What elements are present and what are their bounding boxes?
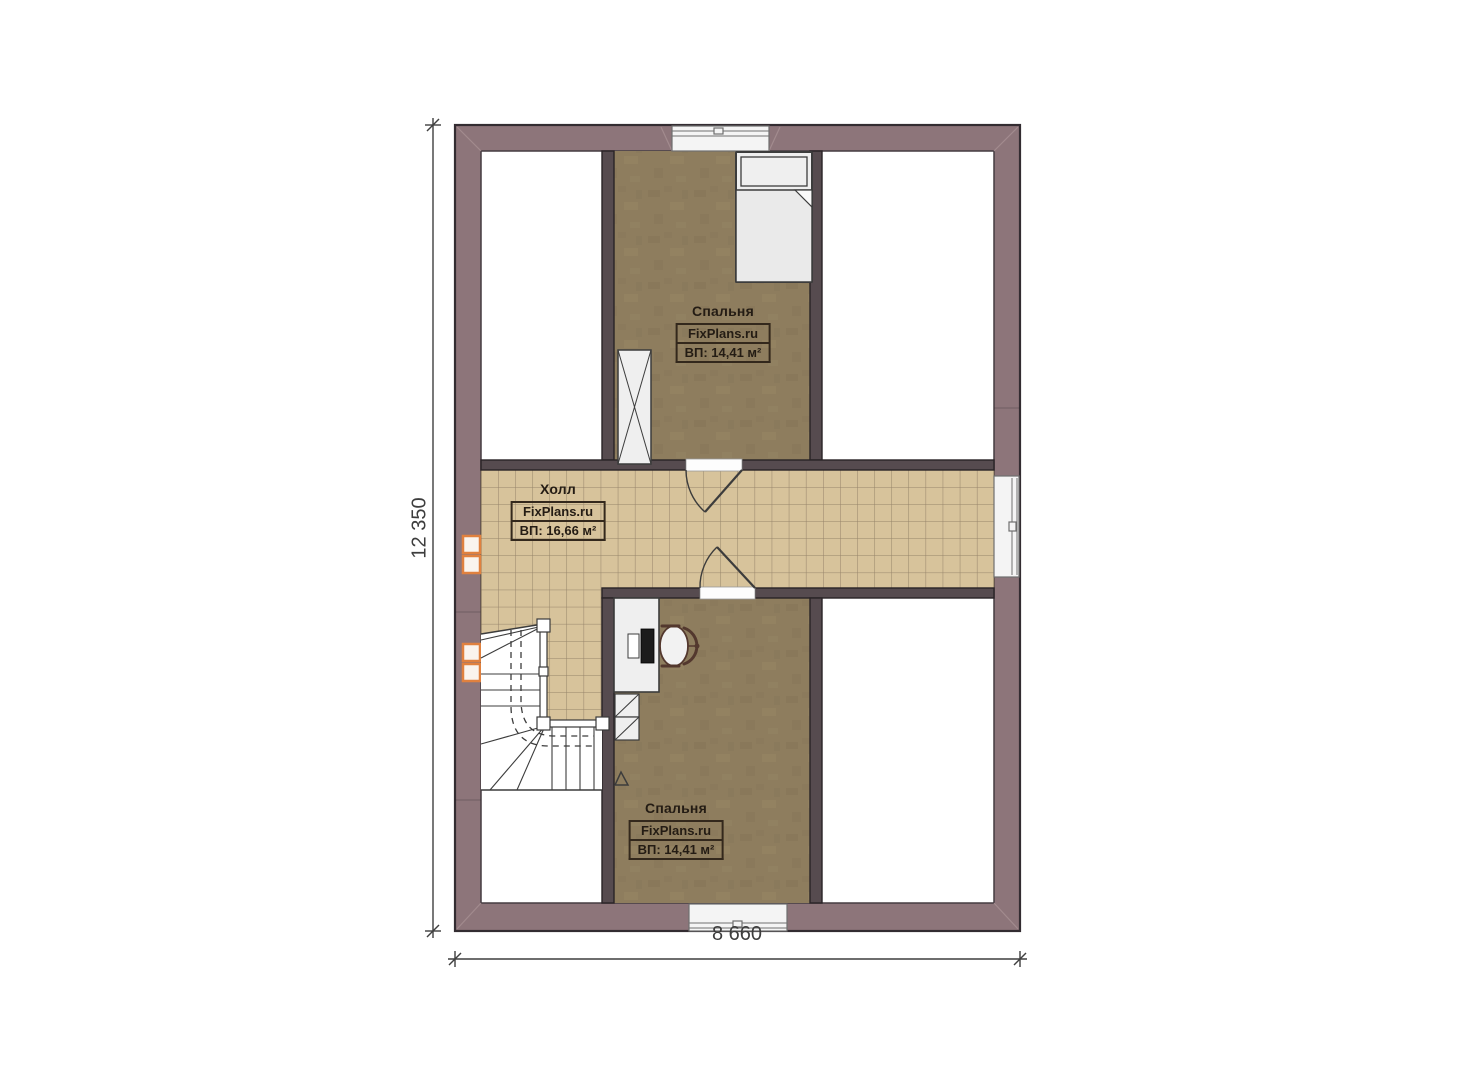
railing-post (537, 619, 550, 632)
window-top (672, 126, 769, 151)
brand-box: FixPlans.ru (676, 323, 771, 344)
room-info-table: FixPlans.ru ВП: 14,41 м² (676, 323, 771, 363)
brand-box: FixPlans.ru (629, 820, 724, 841)
bed (736, 152, 812, 282)
skylight-marker (463, 536, 480, 553)
blanket (736, 190, 812, 282)
area-box: ВП: 14,41 м² (629, 841, 724, 860)
room-label-bedroom-top: Спальня FixPlans.ru ВП: 14,41 м² (676, 303, 771, 363)
dimension-text-horizontal: 8 660 (712, 923, 762, 946)
skylight-marker (463, 644, 480, 661)
keyboard (628, 634, 639, 658)
window-hall-right (994, 476, 1019, 577)
skylight-marker (463, 556, 480, 573)
bedroom-bottom-right-wall (810, 598, 822, 903)
floor-plan-page: Спальня FixPlans.ru ВП: 14,41 м² Холл Fi… (0, 0, 1473, 1080)
floor-plan-drawing (0, 0, 1473, 1080)
room-info-table: FixPlans.ru ВП: 14,41 м² (629, 820, 724, 860)
cabinet (615, 694, 639, 740)
hall-bottom-wall-right (755, 588, 994, 598)
bedroom-bottom-left-wall (602, 598, 614, 903)
area-box: ВП: 14,41 м² (676, 344, 771, 363)
brand-box: FixPlans.ru (511, 501, 606, 522)
room-info-table: FixPlans.ru ВП: 16,66 м² (511, 501, 606, 541)
bedroom-top-left-wall (602, 151, 614, 460)
area-box: ВП: 16,66 м² (511, 522, 606, 541)
door-threshold-bottom (700, 587, 755, 599)
room-label-bedroom-bottom: Спальня FixPlans.ru ВП: 14,41 м² (629, 800, 724, 860)
dimension-text-vertical: 12 350 (409, 497, 432, 558)
wardrobe (618, 350, 651, 464)
room-name: Спальня (645, 800, 707, 816)
monitor (641, 629, 654, 663)
room-name: Спальня (692, 303, 754, 319)
railing-post (537, 717, 550, 730)
door-threshold-top (686, 459, 742, 471)
hall-top-wall-right (742, 460, 994, 470)
railing-post (539, 667, 548, 676)
hall-bottom-wall-left (602, 588, 700, 598)
room-label-hall: Холл FixPlans.ru ВП: 16,66 м² (511, 481, 606, 541)
skylight-marker (463, 664, 480, 681)
dimension-line-horizontal (448, 951, 1027, 967)
room-name: Холл (540, 481, 576, 497)
pillow (741, 157, 807, 186)
railing-post (596, 717, 609, 730)
hall-top-wall-left (481, 460, 686, 470)
